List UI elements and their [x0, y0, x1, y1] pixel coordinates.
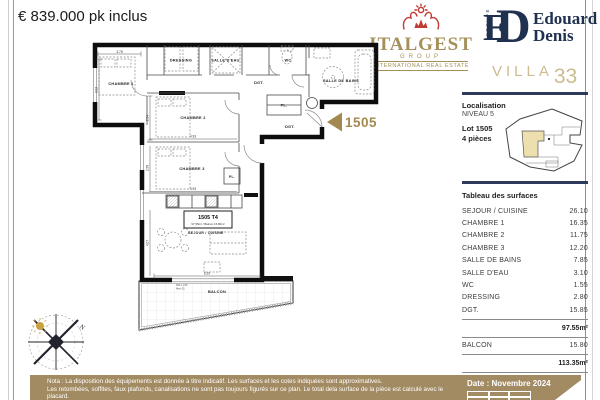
label-chambre1: CHAMBRE 1	[108, 82, 133, 86]
floor-plan: 3.78 3.02 2.54 4.93 2.58 4.93 4.07 6.20 …	[84, 40, 396, 342]
svg-text:4.93: 4.93	[190, 187, 196, 191]
unit-info-box: 1505 T4 97,55m² / Balcon 15,80m²	[184, 211, 232, 228]
italgest-crest-icon	[399, 3, 443, 31]
date-label: Date : Novembre 2024	[467, 379, 551, 388]
svg-text:6.20: 6.20	[204, 272, 210, 276]
villa-number: 33	[554, 65, 577, 88]
table-divider	[462, 337, 588, 338]
balcon-row: BALCON15.80	[462, 340, 588, 352]
table-row: SEJOUR / CUISINE26.10	[462, 205, 588, 217]
table-row: SALLE DE BAINS7.85	[462, 255, 588, 267]
ed-name-line2: Denis	[533, 27, 597, 44]
left-border-outer	[8, 0, 9, 400]
balcony	[139, 281, 293, 330]
svg-text:2.58: 2.58	[146, 165, 150, 171]
svg-text:4.93: 4.93	[190, 135, 196, 139]
svg-text:3.02: 3.02	[95, 87, 99, 93]
arrow-left-icon	[327, 113, 342, 132]
svg-text:1505 T4: 1505 T4	[198, 215, 218, 221]
villa33-logo: VILLA33	[492, 58, 584, 82]
surfaces-subtotal: 97.55m²	[462, 322, 588, 335]
label-pl-1: PL.	[281, 104, 288, 108]
label-chambre2: CHAMBRE 2	[180, 116, 205, 120]
crest-crown	[415, 19, 428, 28]
entrance-arrow: 1505	[327, 113, 377, 132]
surfaces-title: Tableau des surfaces	[462, 191, 588, 200]
sidebar-rule-mid	[462, 181, 588, 184]
table-divider	[462, 372, 588, 373]
villa-word: VILLA	[492, 63, 553, 80]
table-divider	[462, 354, 588, 355]
table-row: WC1.55	[462, 279, 588, 291]
edouard-denis-logo: GROUPE E D Edouard Denis	[473, 2, 585, 58]
label-dgt-1: DGT.	[254, 81, 264, 85]
label-sejour: SEJOUR / CUISINE	[188, 231, 224, 235]
info-sidebar: Localisation NIVEAU 5 Lot 1505 4 pièces …	[462, 92, 588, 375]
table-row: CHAMBRE 211.75	[462, 230, 588, 242]
note-line-2: Les retombées, soffites, faux plafonds, …	[47, 386, 447, 400]
label-salle-eau: SALLE D'EAU	[211, 59, 239, 63]
site-plan-map	[496, 105, 588, 181]
compass-north-label: N	[77, 322, 86, 332]
label-salle-bains: SALLE DE BAINS	[323, 79, 359, 83]
ed-monogram-d: D	[496, 0, 531, 54]
ed-name: Edouard Denis	[533, 10, 597, 44]
svg-text:Men 01: Men 01	[176, 287, 185, 291]
plan-sheet: € 839.000 pk inclus ITALGEST GROUP INTER…	[0, 0, 600, 400]
table-row: DGT.15.85	[462, 304, 588, 316]
table-divider	[462, 319, 588, 320]
title-block-grid	[467, 391, 531, 400]
sidebar-rule-top	[462, 92, 588, 95]
ed-name-line1: Edouard	[533, 10, 597, 27]
svg-text:4.07: 4.07	[146, 240, 150, 246]
footer-band: Nota : La disposition des équipements es…	[30, 375, 581, 400]
table-row: SALLE D'EAU3.10	[462, 267, 588, 279]
compass-rose-icon: N	[20, 306, 92, 378]
svg-text:3.78: 3.78	[116, 50, 122, 54]
svg-text:1505: 1505	[345, 115, 377, 130]
left-border-inner	[13, 0, 14, 400]
localisation-block: Localisation NIVEAU 5 Lot 1505 4 pièces	[462, 101, 588, 181]
label-dressing: DRESSING	[170, 59, 192, 63]
label-wc: WC	[285, 59, 292, 63]
svg-text:900 x 215: 900 x 215	[176, 283, 188, 287]
ed-monogram: GROUPE E D	[483, 2, 533, 58]
right-border-outer	[592, 0, 593, 400]
svg-text:2.54: 2.54	[146, 115, 150, 121]
price-label: € 839.000 pk inclus	[18, 8, 147, 25]
table-row: CHAMBRE 116.35	[462, 217, 588, 229]
label-pl-2: PL.	[229, 175, 235, 179]
legal-notes: Nota : La disposition des équipements es…	[47, 378, 447, 400]
note-line-1: Nota : La disposition des équipements es…	[47, 378, 447, 386]
label-balcon: BALCON	[208, 290, 226, 294]
svg-text:97,55m² / Balcon 15,80m²: 97,55m² / Balcon 15,80m²	[191, 222, 224, 226]
table-row: CHAMBRE 312.20	[462, 242, 588, 254]
surfaces-total: 113.35m²	[462, 357, 588, 370]
table-row: DRESSING2.80	[462, 292, 588, 304]
label-dgt-2: DGT.	[285, 125, 295, 129]
label-chambre3: CHAMBRE 3	[179, 167, 204, 171]
